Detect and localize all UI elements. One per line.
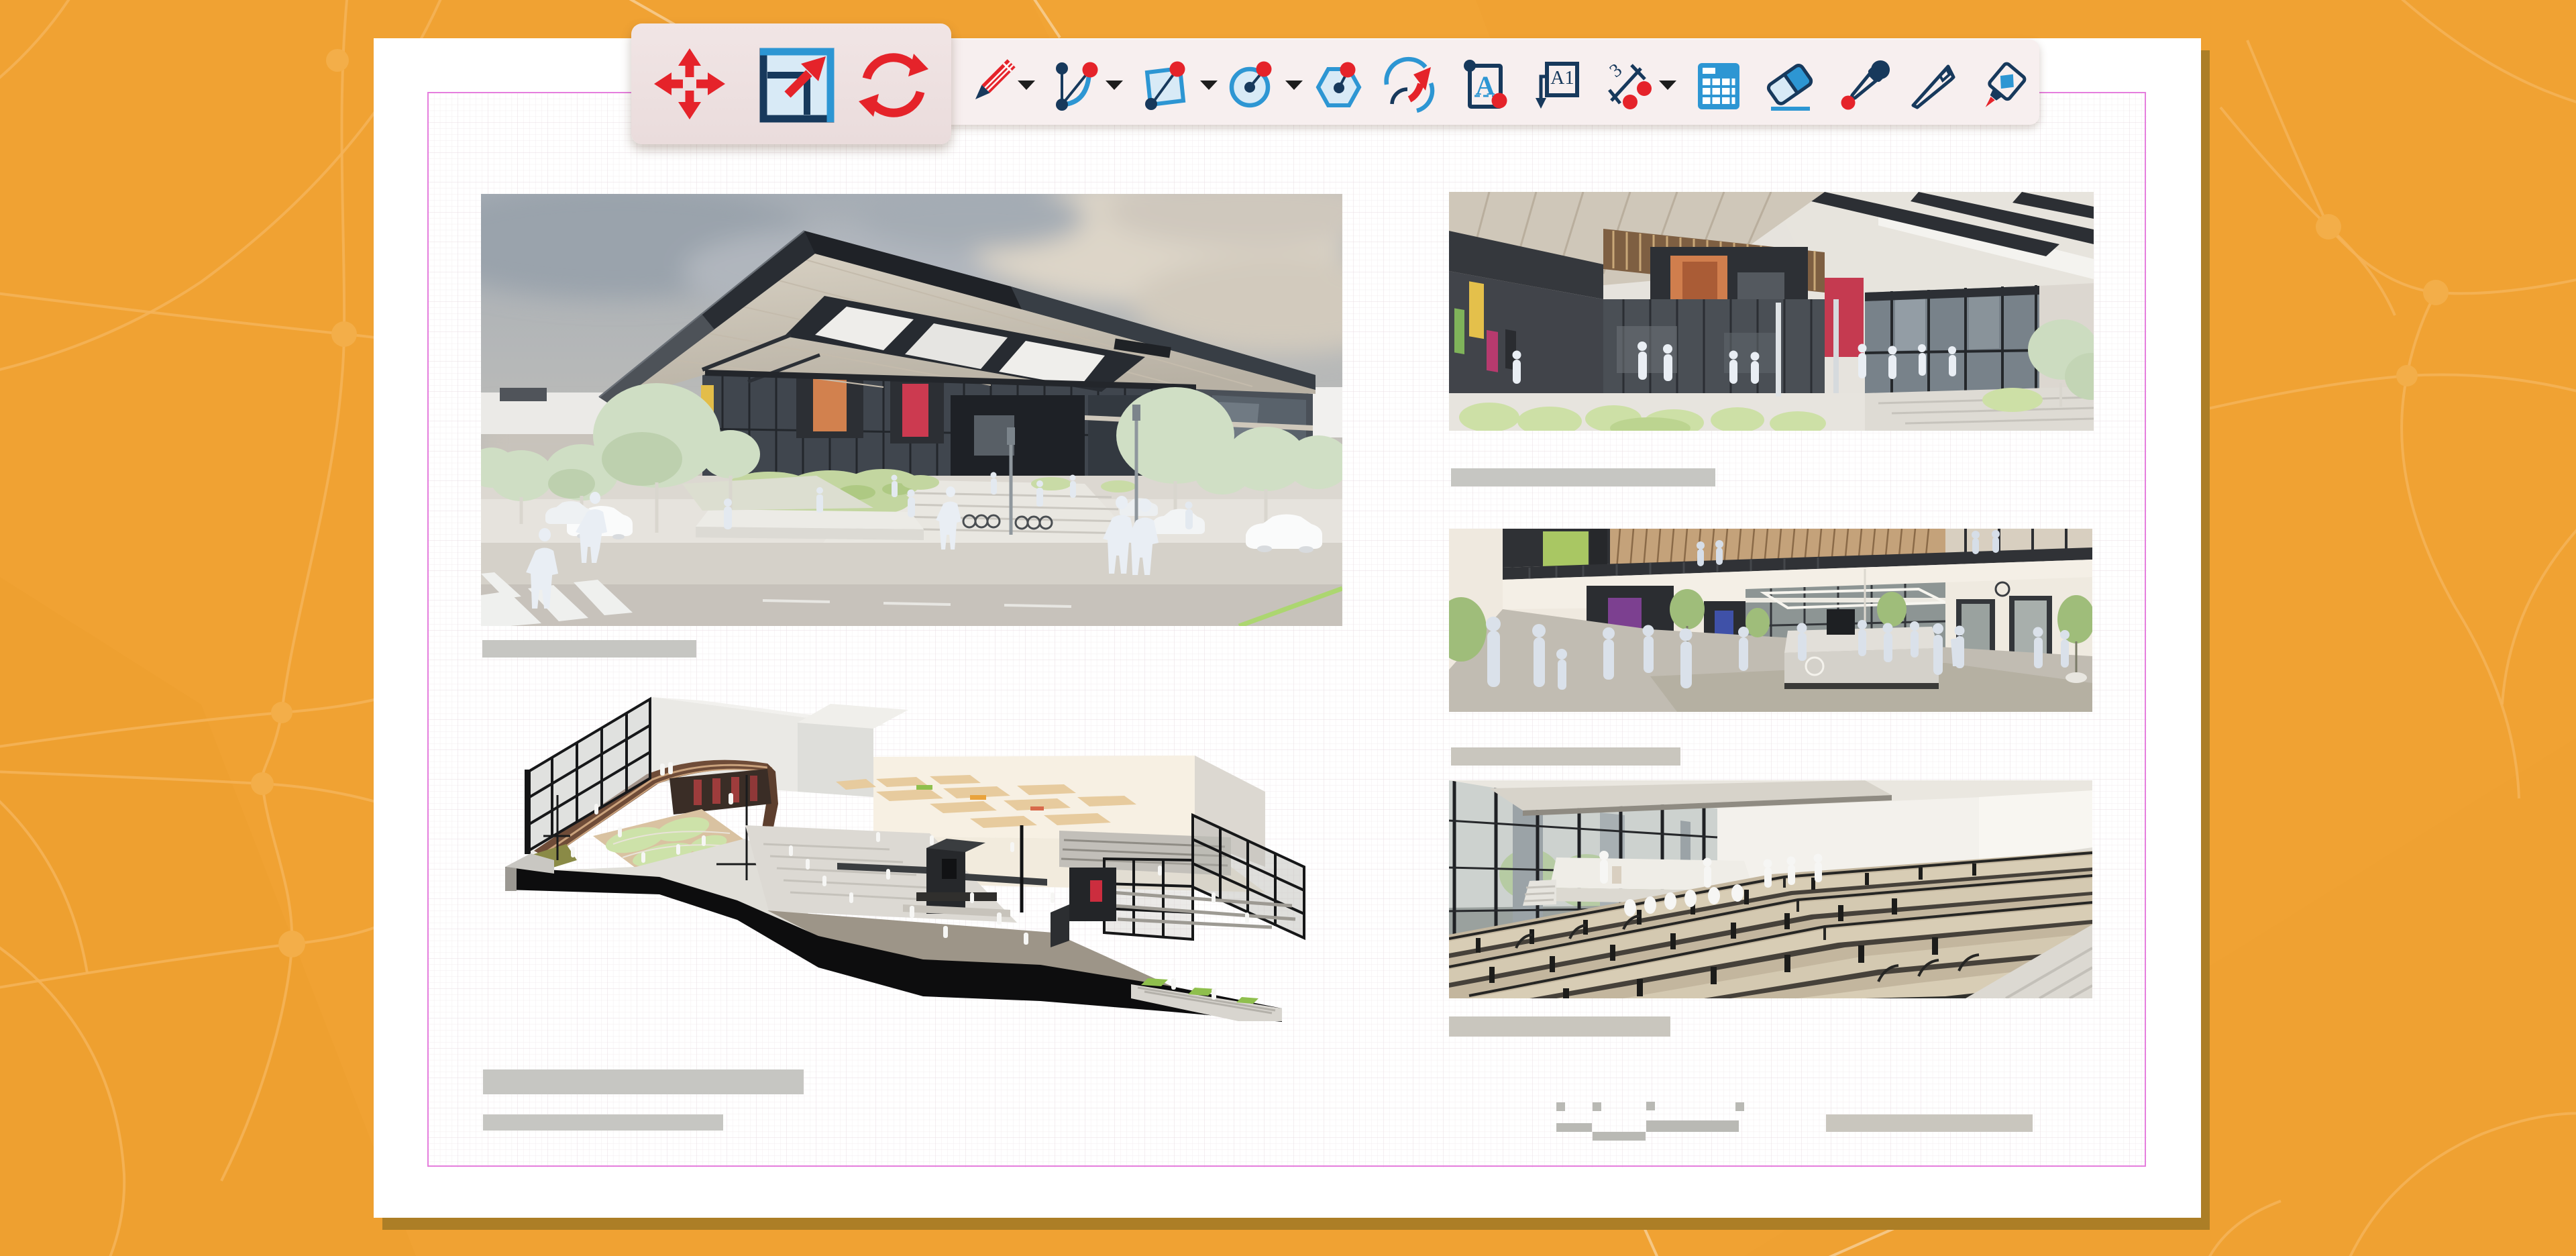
svg-text:3: 3 <box>1606 60 1626 82</box>
svg-text:A1: A1 <box>1550 67 1574 89</box>
